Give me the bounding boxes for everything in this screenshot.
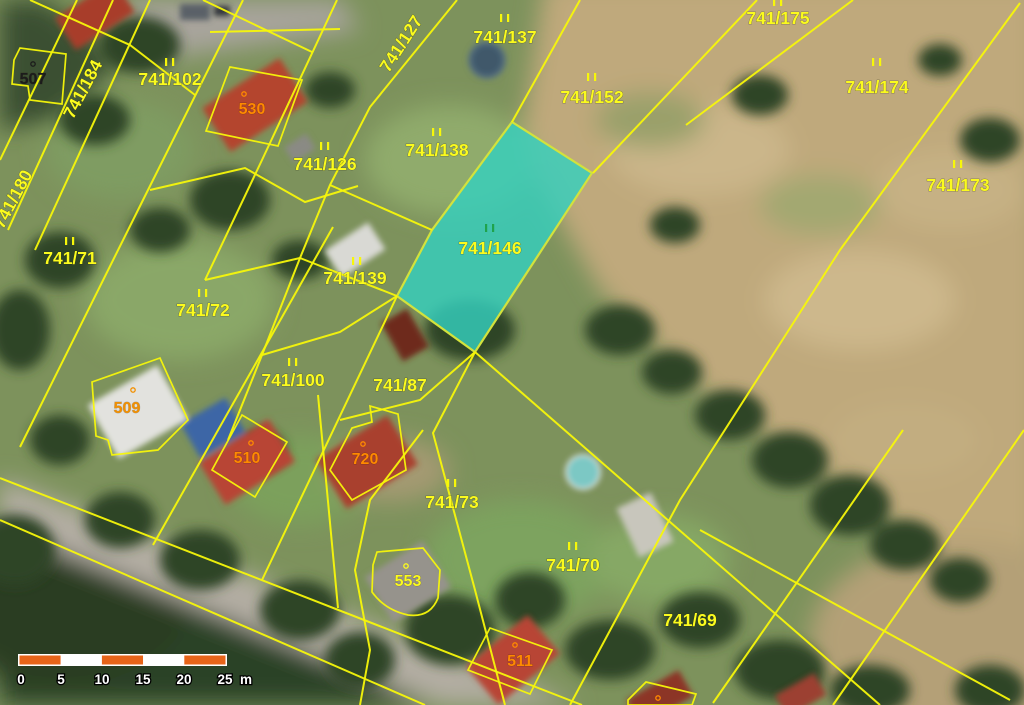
cadastral-map-viewport[interactable]: 741/184 741/180 741/127 741/102 741/71 7…	[0, 0, 1024, 705]
scale-tick-10: 10	[94, 672, 109, 687]
parcel-label-741-87: 741/87	[373, 375, 427, 395]
scale-tick-20: 20	[176, 672, 191, 687]
building-label-530: 530	[239, 101, 266, 118]
scale-tick-25: 25	[217, 672, 233, 687]
parcel-label-741-69: 741/69	[663, 610, 717, 630]
parcel-label-741-146-highlighted: 741/146	[458, 238, 522, 258]
aerial-photo-background	[0, 0, 1024, 705]
building-label-507: 507	[20, 71, 47, 88]
parcel-label-741-137: 741/137	[473, 27, 536, 47]
scale-unit: m	[240, 672, 252, 687]
parcel-label-741-138: 741/138	[405, 140, 469, 160]
parcel-label-741-72: 741/72	[176, 300, 230, 320]
parcel-label-741-139: 741/139	[323, 268, 387, 288]
parcel-label-741-126: 741/126	[293, 154, 357, 174]
parcel-label-741-71: 741/71	[43, 248, 97, 268]
building-label-509: 509	[114, 400, 141, 417]
parcel-label-741-175: 741/175	[746, 8, 810, 28]
building-label-553: 553	[395, 573, 422, 590]
cadastral-map[interactable]: 741/184 741/180 741/127 741/102 741/71 7…	[0, 0, 1024, 705]
parcel-label-741-173: 741/173	[926, 175, 990, 195]
parcel-label-741-73: 741/73	[425, 492, 479, 512]
scale-tick-15: 15	[135, 672, 151, 687]
building-label-511: 511	[507, 653, 533, 670]
pool-round-bottom	[566, 455, 600, 489]
building-label-510: 510	[234, 450, 261, 467]
scale-tick-5: 5	[57, 672, 65, 687]
parcel-label-741-70: 741/70	[546, 555, 600, 575]
building-label-720: 720	[352, 451, 379, 468]
parcel-label-741-100: 741/100	[261, 370, 325, 390]
scale-tick-0: 0	[17, 672, 25, 687]
parcel-label-741-174: 741/174	[845, 77, 909, 97]
parcel-label-741-102: 741/102	[138, 69, 202, 89]
parcel-label-741-152: 741/152	[560, 87, 624, 107]
